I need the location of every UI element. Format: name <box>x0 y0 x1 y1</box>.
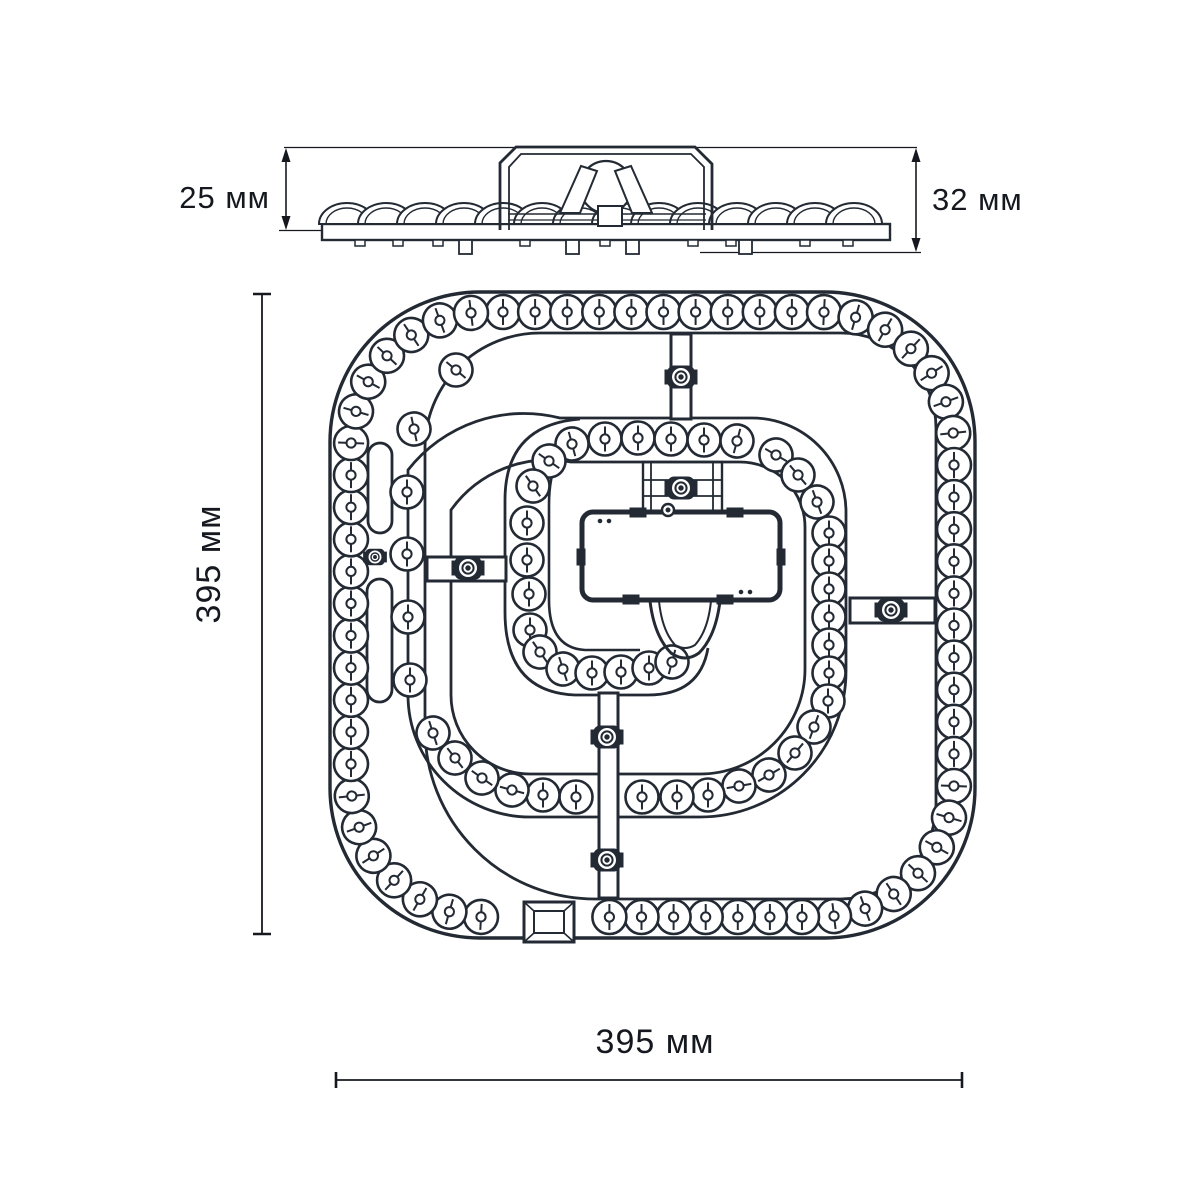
board-foot <box>393 240 403 246</box>
dimension-32mm: 32 мм <box>912 148 1023 252</box>
led <box>689 900 723 934</box>
led <box>391 476 424 509</box>
led <box>334 715 368 749</box>
arrowhead-down-icon <box>912 238 921 252</box>
board-foot <box>843 240 853 246</box>
led <box>935 414 972 451</box>
led <box>936 768 971 803</box>
board-foot <box>726 240 736 246</box>
screw-post <box>875 599 907 621</box>
connector-inner <box>534 911 564 933</box>
led <box>661 781 694 814</box>
board-pin <box>566 240 579 254</box>
arrowhead-up-icon <box>282 148 291 162</box>
led <box>717 421 757 461</box>
label-plan-width: 395 мм <box>596 1023 715 1061</box>
technical-drawing: 25 мм 32 мм <box>0 0 1200 1200</box>
board-pin <box>739 240 752 254</box>
led <box>937 512 971 546</box>
led <box>937 705 971 739</box>
led <box>937 737 971 771</box>
led <box>806 294 842 330</box>
led <box>692 779 725 812</box>
led <box>518 295 552 329</box>
led <box>560 781 593 814</box>
led <box>775 295 809 329</box>
led <box>511 544 544 577</box>
led <box>937 673 971 707</box>
led <box>392 601 425 634</box>
led <box>582 295 616 329</box>
led <box>711 295 745 329</box>
led <box>622 422 655 455</box>
led <box>394 409 433 448</box>
screw-post <box>665 366 697 388</box>
board-foot <box>600 240 610 246</box>
led <box>679 295 713 329</box>
lens-dome <box>826 203 882 224</box>
led <box>334 587 368 621</box>
led <box>753 900 787 934</box>
led <box>589 423 622 456</box>
screw-post <box>452 557 484 579</box>
side-view <box>279 147 921 254</box>
led <box>937 544 971 578</box>
label-height-32: 32 мм <box>932 182 1023 217</box>
board-foot <box>520 240 530 246</box>
led <box>655 423 688 456</box>
led <box>815 897 853 935</box>
led <box>334 522 368 556</box>
led <box>625 900 659 934</box>
plan-view <box>330 292 975 942</box>
label-plan-height: 395 мм <box>190 505 228 624</box>
bracket-base <box>598 206 622 226</box>
dimension-395-vertical: 395 мм <box>190 294 271 934</box>
board-pin <box>459 240 472 254</box>
arrowhead-up-icon <box>912 148 921 162</box>
led <box>592 900 626 934</box>
arrowhead-down-icon <box>282 216 291 230</box>
led <box>688 424 721 457</box>
led <box>334 619 368 653</box>
led <box>452 294 490 332</box>
screw-post <box>363 549 386 565</box>
led <box>937 641 971 675</box>
mounting-slot <box>367 579 392 702</box>
led <box>647 295 681 329</box>
led <box>743 295 777 329</box>
led <box>391 538 424 571</box>
led <box>614 295 648 329</box>
led <box>334 458 368 492</box>
led <box>334 651 368 685</box>
led <box>334 683 368 717</box>
driver-box <box>577 508 785 604</box>
led <box>721 900 755 934</box>
board-pin <box>626 240 639 254</box>
led <box>333 777 370 814</box>
board-foot <box>800 240 810 246</box>
screw-post <box>665 477 697 499</box>
led <box>486 295 520 329</box>
screw-post <box>591 726 623 748</box>
led <box>657 900 691 934</box>
dimension-395-horizontal: 395 мм <box>336 1023 962 1088</box>
led <box>937 609 971 643</box>
led <box>334 425 369 460</box>
led <box>511 507 544 540</box>
led <box>334 490 368 524</box>
led <box>527 779 560 812</box>
dimension-25mm: 25 мм <box>179 148 290 230</box>
led <box>334 554 368 588</box>
board-foot <box>433 240 443 246</box>
led <box>550 295 584 329</box>
screw-post <box>591 849 623 871</box>
led <box>394 664 427 697</box>
led <box>334 747 368 781</box>
led <box>937 480 971 514</box>
led <box>937 448 971 482</box>
wire-connector <box>524 902 574 942</box>
board-foot <box>688 240 698 246</box>
led <box>463 899 499 935</box>
label-height-25: 25 мм <box>179 180 270 215</box>
led <box>785 900 819 934</box>
mounting-slot <box>368 443 392 533</box>
mounting-slots <box>367 443 392 702</box>
led <box>937 576 971 610</box>
board-foot <box>355 240 365 246</box>
led <box>513 578 546 611</box>
led <box>626 781 659 814</box>
